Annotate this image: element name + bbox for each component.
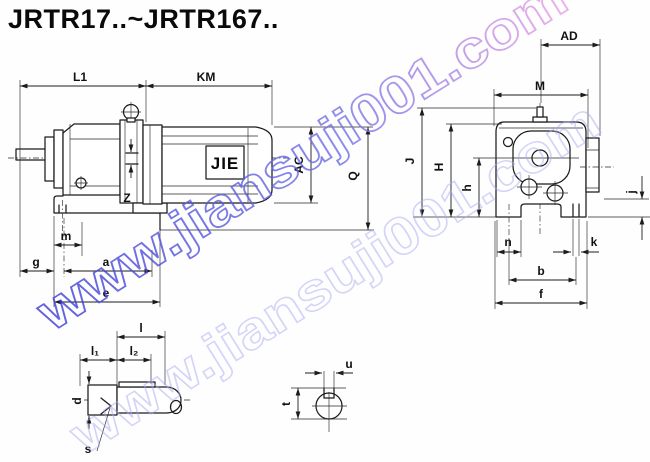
dim-label-t: t	[279, 402, 293, 406]
dim-label-u: u	[345, 357, 352, 371]
dim-label-AD: AD	[560, 29, 578, 43]
dim-label-M: M	[535, 79, 545, 93]
dim-label-k: k	[591, 235, 598, 249]
dim-label-l2: l₂	[130, 344, 139, 358]
keyway-detail-drawing: u t	[279, 357, 353, 432]
dim-label-n: n	[504, 235, 511, 249]
gear-case	[63, 124, 120, 195]
dim-label-Q: Q	[346, 171, 360, 180]
dim-label-l1: l₁	[91, 344, 99, 358]
dim-label-l: l	[139, 321, 142, 335]
dim-label-H: H	[432, 163, 446, 172]
eyebolt-icon	[121, 102, 141, 122]
dim-label-Z: Z	[123, 191, 130, 205]
input-shaft	[16, 149, 46, 160]
dim-label-f: f	[539, 287, 544, 301]
dim-label-J: J	[403, 158, 417, 165]
dim-label-b: b	[537, 264, 544, 278]
dim-label-L1: L1	[73, 70, 87, 84]
drawing-page: JRTR17..~JRTR167..	[0, 0, 650, 462]
technical-drawing: JIE Z L1 KM AC	[0, 0, 650, 462]
dim-label-m: m	[61, 229, 72, 243]
dim-label-g: g	[32, 255, 39, 269]
dim-label-KM: KM	[197, 70, 216, 84]
dim-label-j: j	[624, 190, 638, 194]
